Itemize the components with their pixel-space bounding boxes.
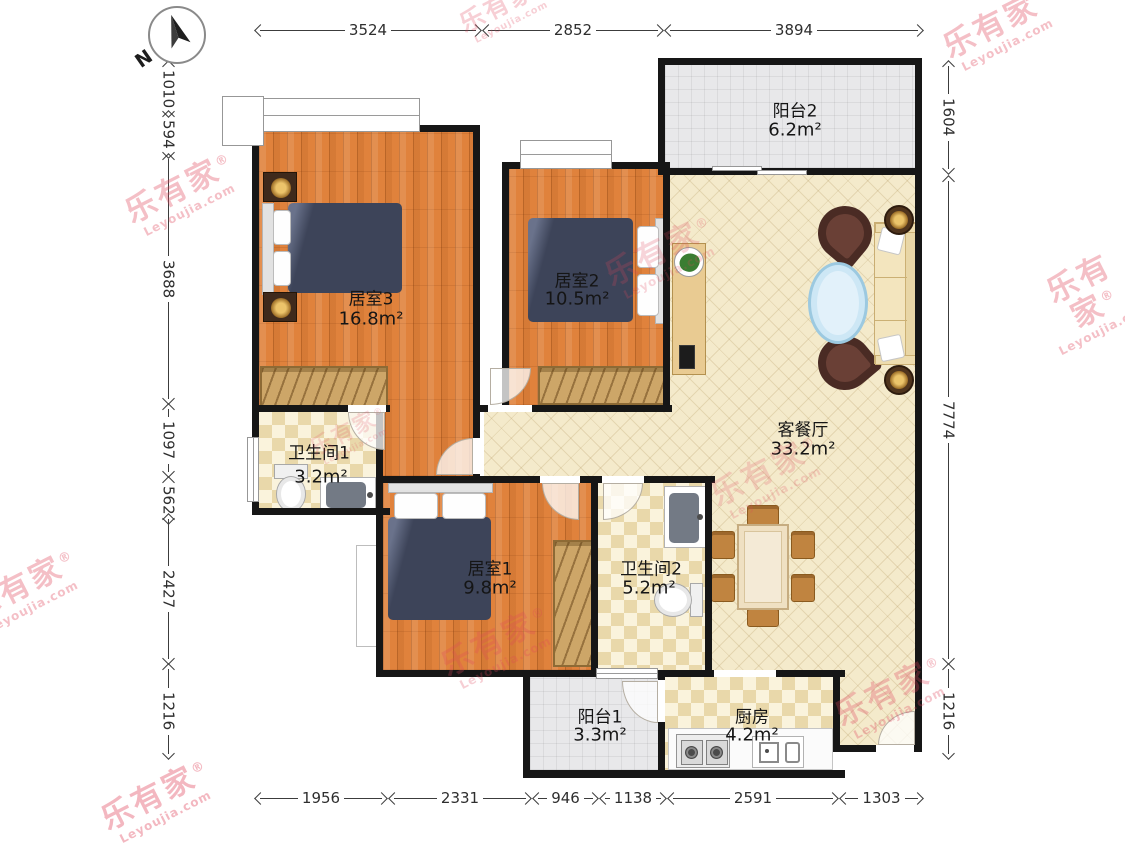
room-area-bedroom1: 9.8m² — [463, 578, 516, 599]
quilt — [288, 203, 402, 293]
tv — [679, 345, 695, 369]
watermark: 乐有家®Leyoujia.com — [938, 0, 1062, 77]
watermark-brand: 乐有家® — [0, 545, 80, 626]
watermark: 乐有家®Leyoujia.com — [0, 545, 87, 639]
watermark: 乐有家®Leyoujia.com — [96, 755, 220, 844]
cushion-line — [875, 320, 907, 321]
dimension-value: 3688 — [161, 256, 176, 302]
arrow-icon — [664, 24, 677, 37]
side-table — [884, 365, 914, 395]
dimension-top: 3894 — [666, 22, 922, 38]
pillow — [273, 210, 291, 245]
arrow-icon — [586, 792, 599, 805]
wall — [663, 162, 670, 412]
plant-icon — [674, 247, 704, 277]
arrow-icon — [388, 792, 401, 805]
nightstand — [263, 292, 297, 322]
dimension-left: 2427 — [160, 515, 176, 663]
watermark-domain: Leyoujia.com — [111, 784, 220, 844]
window — [757, 170, 807, 175]
dimension-left: 562 — [160, 478, 176, 513]
decor-icon — [890, 371, 908, 389]
dimension-value: 2427 — [161, 566, 176, 612]
window — [222, 96, 264, 146]
arrow-icon — [651, 24, 664, 37]
arrow-icon — [519, 792, 532, 805]
arrow-icon — [532, 792, 545, 805]
arrow-icon — [162, 663, 175, 676]
watermark: 乐有家®Leyoujia.com — [1027, 242, 1125, 358]
arrow-icon — [826, 792, 839, 805]
nightstand — [263, 172, 297, 202]
room-label-bathroom2: 卫生间2 — [620, 555, 682, 580]
dimension-right: 7774 — [940, 177, 956, 663]
dining-chair — [711, 531, 735, 559]
stove — [676, 734, 730, 768]
dimension-value: 2591 — [730, 791, 776, 806]
faucet-icon — [785, 742, 800, 763]
pillow — [394, 493, 438, 519]
arrow-icon — [839, 792, 852, 805]
registered-icon: ® — [1098, 286, 1116, 305]
room-area-balcony2: 6.2m² — [768, 120, 821, 141]
room-label-bedroom3: 居室3 — [349, 285, 394, 310]
dimension-bottom: 2591 — [669, 790, 837, 806]
dimension-left: 1010 — [160, 62, 176, 110]
sofa-pillow — [877, 334, 905, 362]
dimension-bottom: 1956 — [256, 790, 386, 806]
room-label-balcony2: 阳台2 — [773, 97, 818, 122]
wall — [473, 125, 480, 483]
dimension-right: 1604 — [940, 62, 956, 173]
dimension-value: 3894 — [771, 23, 817, 38]
watermark: 乐有家®Leyoujia.com — [120, 148, 244, 242]
window — [712, 166, 762, 171]
cushion-line — [875, 277, 907, 278]
room-area-bedroom2: 10.5m² — [545, 289, 610, 310]
door-opening — [348, 405, 386, 412]
dimension-value: 1303 — [858, 791, 904, 806]
bedroom3-wardrobe — [260, 366, 388, 407]
dimension-left: 594 — [160, 112, 176, 153]
dimension-value: 1956 — [298, 791, 344, 806]
door-opening — [714, 670, 776, 677]
bedroom1-bed — [388, 483, 491, 620]
pillow — [637, 274, 659, 316]
compass: N — [148, 6, 206, 64]
wall — [658, 58, 922, 65]
coffee-table — [808, 262, 868, 344]
decor-icon — [271, 298, 291, 318]
room-area-bathroom2: 5.2m² — [622, 578, 675, 599]
dimension-value: 2331 — [437, 791, 483, 806]
registered-icon: ® — [213, 151, 231, 170]
dimension-bottom: 1138 — [601, 790, 665, 806]
window — [596, 668, 658, 679]
watermark-domain: Leyoujia.com — [1057, 300, 1125, 358]
arrow-icon — [911, 792, 924, 805]
arrow-icon — [162, 513, 175, 526]
dimension-value: 1097 — [161, 417, 176, 463]
arrow-icon — [942, 175, 955, 188]
north-arrow-icon — [148, 4, 206, 62]
arrow-icon — [942, 663, 955, 676]
watermark-domain: Leyoujia.com — [0, 574, 87, 639]
drain-icon — [765, 749, 769, 753]
dining-chair — [747, 505, 779, 526]
dimension-left: 1097 — [160, 405, 176, 476]
room-label-living: 客餐厅 — [778, 416, 829, 441]
door-opening — [473, 438, 480, 474]
watermark-brand: 乐有家® — [120, 148, 237, 229]
dimension-value: 1216 — [161, 688, 176, 734]
pillow — [637, 226, 659, 268]
pillow — [273, 251, 291, 286]
sofa — [874, 222, 917, 364]
watermark-domain: Leyoujia.com — [135, 177, 244, 242]
dimension-top: 3524 — [256, 22, 480, 38]
wall — [523, 670, 530, 778]
room-area-balcony1: 3.3m² — [573, 725, 626, 746]
dimension-top: 2852 — [484, 22, 662, 38]
arrow-icon — [482, 24, 495, 37]
dining-chair — [711, 574, 735, 602]
wall — [705, 476, 712, 677]
watermark-brand: 乐有家® — [1027, 242, 1125, 346]
side-table — [884, 205, 914, 235]
arrow-icon — [942, 60, 955, 73]
dining-table — [737, 524, 789, 610]
window — [262, 98, 420, 132]
arrow-icon — [911, 24, 924, 37]
faucet-icon — [697, 514, 703, 520]
burner-icon — [681, 740, 703, 765]
north-label: N — [131, 45, 157, 72]
dimension-value: 1604 — [941, 94, 956, 140]
registered-icon: ® — [56, 548, 74, 567]
watermark-domain: Leyoujia.com — [953, 12, 1062, 77]
window — [247, 437, 259, 502]
dining-chair — [791, 574, 815, 602]
arrow-icon — [667, 792, 680, 805]
wall — [523, 770, 845, 778]
headboard — [388, 483, 493, 493]
room-area-bathroom1: 3.2m² — [294, 467, 347, 488]
arrow-icon — [162, 403, 175, 416]
dimension-value: 1216 — [941, 688, 956, 734]
bedroom2-wardrobe — [538, 366, 668, 405]
watermark-brand: 乐有家® — [96, 755, 213, 836]
wall — [658, 58, 665, 175]
door-opening — [602, 476, 644, 483]
door-opening — [876, 745, 914, 752]
door-opening — [488, 405, 532, 412]
room-area-kitchen: 4.2m² — [725, 725, 778, 746]
arrow-icon — [162, 153, 175, 166]
dimension-bottom: 2331 — [390, 790, 530, 806]
arrow-icon — [254, 24, 267, 37]
wall — [833, 670, 840, 752]
pillow — [442, 493, 486, 519]
wall — [915, 58, 922, 752]
arrow-icon — [375, 792, 388, 805]
dimension-value: 2852 — [550, 23, 596, 38]
dimension-left: 3688 — [160, 155, 176, 403]
decor-icon — [890, 211, 908, 229]
dimension-left: 1216 — [160, 665, 176, 758]
dimension-value: 1138 — [610, 791, 656, 806]
dimension-value: 946 — [547, 791, 584, 806]
arrow-icon — [162, 747, 175, 760]
room-label-bedroom1: 居室1 — [468, 555, 513, 580]
registered-icon: ® — [189, 758, 207, 777]
arrow-icon — [942, 747, 955, 760]
door-opening — [540, 476, 580, 483]
registered-icon: ® — [1031, 0, 1049, 6]
dimension-value: 7774 — [941, 397, 956, 443]
dimension-bottom: 1303 — [841, 790, 922, 806]
wall — [591, 476, 598, 677]
floorplan-canvas: N — [0, 0, 1125, 844]
dining-chair — [791, 531, 815, 559]
room-area-living: 33.2m² — [771, 439, 836, 460]
window — [520, 140, 612, 169]
faucet-icon — [367, 492, 373, 498]
dimension-right: 1216 — [940, 665, 956, 758]
dimension-bottom: 946 — [534, 790, 597, 806]
door-opening — [658, 680, 665, 722]
dimension-value: 3524 — [345, 23, 391, 38]
plant-leaf — [677, 250, 702, 275]
arrow-icon — [469, 24, 482, 37]
wall — [252, 508, 390, 515]
bedroom3-bed — [262, 203, 402, 293]
watermark-brand: 乐有家® — [938, 0, 1055, 64]
room-area-bedroom3: 16.8m² — [339, 309, 404, 330]
sink-vanity — [664, 486, 706, 548]
arrow-icon — [254, 792, 267, 805]
sink-basin — [669, 493, 699, 543]
registered-icon: ® — [923, 654, 941, 673]
arrow-icon — [942, 162, 955, 175]
room-label-bathroom1: 卫生间1 — [288, 439, 350, 464]
decor-icon — [271, 178, 291, 198]
